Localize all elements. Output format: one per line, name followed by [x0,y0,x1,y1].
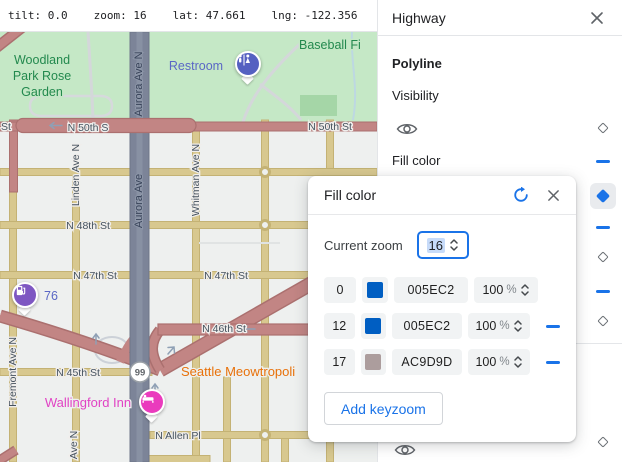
dialog-close-button[interactable] [545,187,562,204]
street-label: Whitman Ave N [190,144,202,216]
poi-label-hotel: Wallingford Inn [45,395,131,410]
current-zoom-row: Current zoom 16 [324,231,560,259]
poi-label-gas: 76 [44,289,58,303]
opacity-stepper[interactable]: 100% [468,313,529,339]
street-label: N 45th St [56,367,100,379]
status-zoom: zoom: 16 [94,9,147,22]
refresh-icon [513,187,529,203]
park-label: Park Rose [13,69,71,83]
park-label: Woodland [14,53,70,67]
poi-label-restroom: Restroom [169,59,223,73]
keyzoom-selected-indicator[interactable] [590,183,616,209]
keyzoom-minus-icon[interactable] [596,226,610,229]
reset-button[interactable] [511,185,531,205]
remove-keyzoom-button[interactable] [546,325,560,328]
ballfield-area [300,95,337,116]
opacity-stepper[interactable]: 100% [474,277,538,303]
svg-text:99: 99 [135,368,146,379]
current-zoom-stepper[interactable]: 16 [417,231,469,259]
swatch-color [365,318,381,334]
stepper-chevrons-icon[interactable] [513,318,523,334]
fill-color-dialog: Fill color Current zoom 16 [308,176,576,442]
dialog-divider [308,214,576,215]
close-icon [590,11,604,25]
street-label: N 46th St [202,323,246,335]
close-icon [547,189,560,202]
keyzoom-minus-icon[interactable] [596,290,610,293]
stepper-chevrons-icon[interactable] [520,282,530,298]
hotel-pin[interactable] [139,389,165,415]
route-99-shield: 99 [130,362,150,382]
property-label-fill-color: Fill color [392,153,440,168]
filled-diamond-icon [596,189,610,203]
park-label: Baseball Fi [299,38,361,52]
color-swatch[interactable] [361,313,386,339]
restroom-pin[interactable] [235,51,261,77]
street-label: Ave N [68,431,80,459]
dialog-header: Fill color [308,176,576,214]
street-label: N Allen Pl [155,430,201,442]
street-label: St [1,121,11,133]
map-style-editor: tilt: 0.0 zoom: 16 lat: 47.661 lng: -122… [0,0,622,462]
dialog-title: Fill color [324,187,497,203]
status-lng: lng: -122.356 [271,9,357,22]
street-label: Fremont Ave N [7,337,19,407]
keyzoom-diamond-icon[interactable] [597,122,608,133]
remove-keyzoom-button[interactable] [546,361,560,364]
opacity-value: 100 [482,283,503,297]
keyzoom-minus-icon[interactable] [596,160,610,163]
add-keyzoom-button[interactable]: Add keyzoom [324,392,443,425]
keyzoom-row: 17 AC9D9D 100% [324,349,560,375]
opacity-value: 100 [475,355,496,369]
panel-header: Highway [378,0,622,36]
street-label: N 47th St [204,270,248,282]
street-label: Aurora Ave N [133,51,145,116]
street-label: N 50th St [308,121,352,133]
percent-sign: % [499,320,509,332]
street-label: N 48th St [66,220,110,232]
visibility-eye-button-2[interactable] [392,440,418,460]
hex-color-field[interactable]: 005EC2 [394,277,468,303]
swatch-color [367,282,383,298]
color-swatch[interactable] [361,349,386,375]
street-label: Aurora Ave [133,174,145,228]
map-status-bar: tilt: 0.0 zoom: 16 lat: 47.661 lng: -122… [0,0,377,32]
hex-color-field[interactable]: 005EC2 [392,313,463,339]
percent-sign: % [506,284,516,296]
street-label: N 47th St [73,270,117,282]
status-tilt: tilt: 0.0 [8,9,68,22]
street-label: N 50th S [68,122,109,134]
poi-label-cafe: Seattle Meowtropoli [181,364,295,379]
gas-pump-icon [14,284,27,297]
keyzoom-diamond-icon[interactable] [597,315,608,326]
street-label: Linden Ave N [70,144,82,206]
keyzoom-level-field[interactable]: 17 [324,349,355,375]
keyzoom-level-field[interactable]: 12 [324,313,355,339]
opacity-stepper[interactable]: 100% [468,349,529,375]
eye-icon [396,121,418,137]
keyzoom-diamond-icon[interactable] [597,251,608,262]
status-lat: lat: 47.661 [173,9,246,22]
keyzoom-level-field[interactable]: 0 [324,277,356,303]
swatch-color [365,354,381,370]
stepper-chevrons-icon[interactable] [449,237,459,253]
bed-icon [141,391,155,405]
property-label-visibility: Visibility [392,88,439,103]
park-label: Garden [21,85,63,99]
keyzoom-diamond-icon[interactable] [597,436,608,447]
eye-icon [394,442,416,458]
current-zoom-value[interactable]: 16 [427,238,445,253]
panel-title: Highway [392,10,588,26]
gas-station-pin[interactable] [12,282,38,308]
stepper-chevrons-icon[interactable] [513,354,523,370]
percent-sign: % [499,356,509,368]
visibility-eye-button[interactable] [394,119,420,139]
panel-close-button[interactable] [588,9,606,27]
hex-color-field[interactable]: AC9D9D [392,349,463,375]
restroom-icon [237,53,251,67]
keyzoom-row: 12 005EC2 100% [324,313,560,339]
current-zoom-label: Current zoom [324,238,403,253]
color-swatch[interactable] [362,277,388,303]
keyzoom-row: 0 005EC2 100% [324,277,560,303]
opacity-value: 100 [475,319,496,333]
section-label-polyline: Polyline [392,56,442,71]
